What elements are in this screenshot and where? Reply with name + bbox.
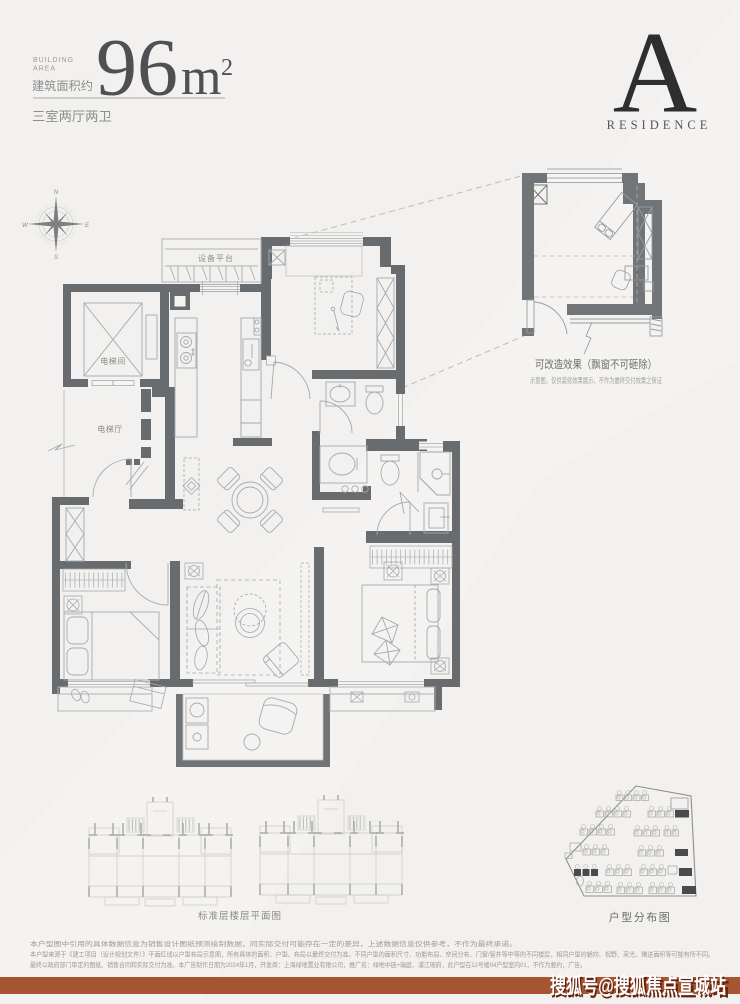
svg-text:2: 2 [221, 55, 233, 81]
svg-text:搜狐号@搜狐焦点宣城站: 搜狐号@搜狐焦点宣城站 [550, 974, 726, 998]
svg-text:BUILDING: BUILDING [33, 57, 74, 64]
svg-text:电梯间: 电梯间 [100, 356, 126, 366]
svg-text:RESIDENCE: RESIDENCE [607, 118, 712, 132]
svg-text:AREA: AREA [33, 66, 56, 73]
svg-text:本户型来源于《建工项目（设计规划文件）》平面红线以户型布局示: 本户型来源于《建工项目（设计规划文件）》平面红线以户型布局示意图，所有具体的面积… [30, 950, 714, 959]
svg-text:设备平台: 设备平台 [198, 253, 234, 263]
svg-text:96: 96 [96, 22, 178, 113]
svg-text:最终以政府部门审定的图纸、销售合同和实际交付为准。本广告制作: 最终以政府部门审定的图纸、销售合同和实际交付为准。本广告制作日期为2024年1月… [30, 960, 586, 969]
svg-text:户型分布图: 户型分布图 [609, 910, 672, 924]
svg-text:示意图，仅供装修效果展示，不作为最终交付效果之保证: 示意图，仅供装修效果展示，不作为最终交付效果之保证 [530, 376, 662, 385]
svg-text:建筑面积约: 建筑面积约 [32, 78, 93, 93]
svg-text:S: S [54, 255, 58, 261]
svg-text:三室两厅两卫: 三室两厅两卫 [32, 108, 112, 124]
svg-text:本户型图中引用的具体数据信息为销售设计图纸预测绘制数据，同实: 本户型图中引用的具体数据信息为销售设计图纸预测绘制数据，同实际交付可能存在一定的… [30, 939, 517, 948]
svg-text:可改造效果（飘窗不可砸除）: 可改造效果（飘窗不可砸除） [535, 357, 657, 371]
svg-text:电梯厅: 电梯厅 [97, 424, 123, 434]
svg-text:N: N [54, 190, 59, 196]
svg-text:标准层楼层平面图: 标准层楼层平面图 [198, 910, 282, 922]
